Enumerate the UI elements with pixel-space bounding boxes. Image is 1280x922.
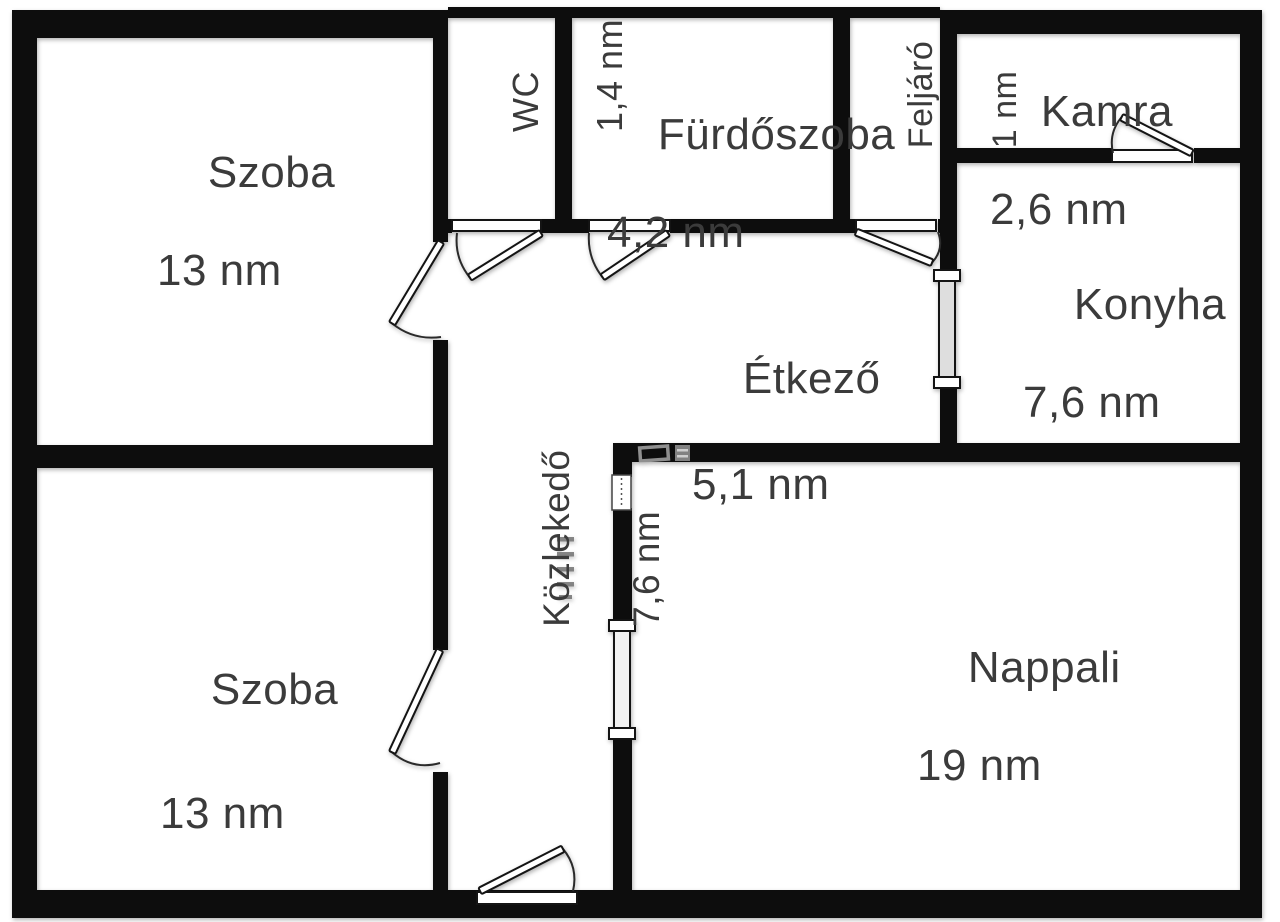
room-name: Konyha (1074, 280, 1226, 329)
room-label-szoba-top: Szoba 13 nm (157, 99, 335, 393)
room-name: Közlekedő (536, 450, 577, 627)
window-cap (934, 270, 960, 281)
door-leaf (389, 649, 443, 754)
room-name: Nappali (968, 643, 1121, 692)
room-name: WC (505, 71, 546, 132)
wall-corridor-left-3 (433, 468, 448, 650)
room-name: Feljáró (902, 41, 940, 148)
window-cap (609, 728, 635, 739)
room-label-feljaro: Feljáró 1 nm (858, 41, 1068, 188)
kozlekedo-door (478, 846, 574, 894)
wall-outer-top-mid (448, 7, 940, 18)
room-name: Étkező (743, 354, 881, 403)
room-area: 4,2 nm (607, 208, 895, 257)
window-cap (934, 377, 960, 388)
konyha-window (934, 270, 960, 388)
wall-feljaro-bottom-foot (938, 219, 957, 233)
room-name: Szoba (208, 148, 335, 197)
wall-wc-bottom-b (541, 219, 589, 233)
wall-outer-top-right (940, 10, 1262, 34)
wall-nappali-left-3 (613, 735, 632, 890)
wall-corridor-left-1 (433, 14, 448, 242)
room-area: 7,6 nm (626, 511, 667, 627)
room-label-wc: WC 1,4 nm (463, 19, 673, 174)
door-swing-arc (563, 849, 575, 891)
door-leaf (468, 230, 543, 280)
room-area: 2,6 nm (990, 185, 1173, 234)
room-label-etkezo: Étkező 5,1 nm (692, 299, 880, 617)
room-area: 13 nm (157, 246, 335, 295)
door-swing-arc (589, 233, 603, 277)
wall-corridor-left-4 (433, 772, 448, 890)
szoba-top-door (389, 240, 444, 337)
room-label-szoba-bottom: Szoba 13 nm (160, 597, 338, 922)
wall-outer-top-left (12, 10, 448, 38)
room-name: Szoba (211, 665, 338, 714)
room-area: 1,4 nm (589, 19, 630, 132)
wall-wc-bottom-a (433, 219, 452, 233)
room-area: 1 nm (986, 71, 1024, 149)
threshold-kozlekedo-door (477, 892, 577, 904)
window-pane (939, 281, 955, 377)
room-label-nappali: Nappali 19 nm (917, 594, 1121, 888)
wall-mid-left (12, 445, 448, 468)
threshold-wc-door (452, 220, 541, 231)
door-leaf (389, 240, 444, 325)
door-swing-arc (392, 323, 441, 337)
floor-plan: Szoba 13 nm Fürdőszoba 4,2 nm Kamra 2,6 … (0, 0, 1280, 922)
szoba-bottom-door (389, 649, 443, 766)
room-area: 19 nm (917, 741, 1121, 790)
door-swing-arc (932, 232, 940, 263)
room-label-konyha: Konyha 7,6 nm (1023, 231, 1226, 525)
door-swing-arc (392, 752, 440, 765)
wall-kamra-bottom-right (1194, 148, 1262, 163)
room-area: 5,1 nm (692, 458, 880, 511)
door-leaf (478, 846, 564, 894)
room-label-kozlekedo: Közlekedő 7,6 nm (489, 450, 714, 670)
wall-outer-right (1240, 10, 1262, 918)
door-swing-arc (457, 233, 470, 278)
room-area: 7,6 nm (1023, 378, 1226, 427)
room-area: 13 nm (160, 783, 338, 845)
wc-door (457, 230, 543, 280)
